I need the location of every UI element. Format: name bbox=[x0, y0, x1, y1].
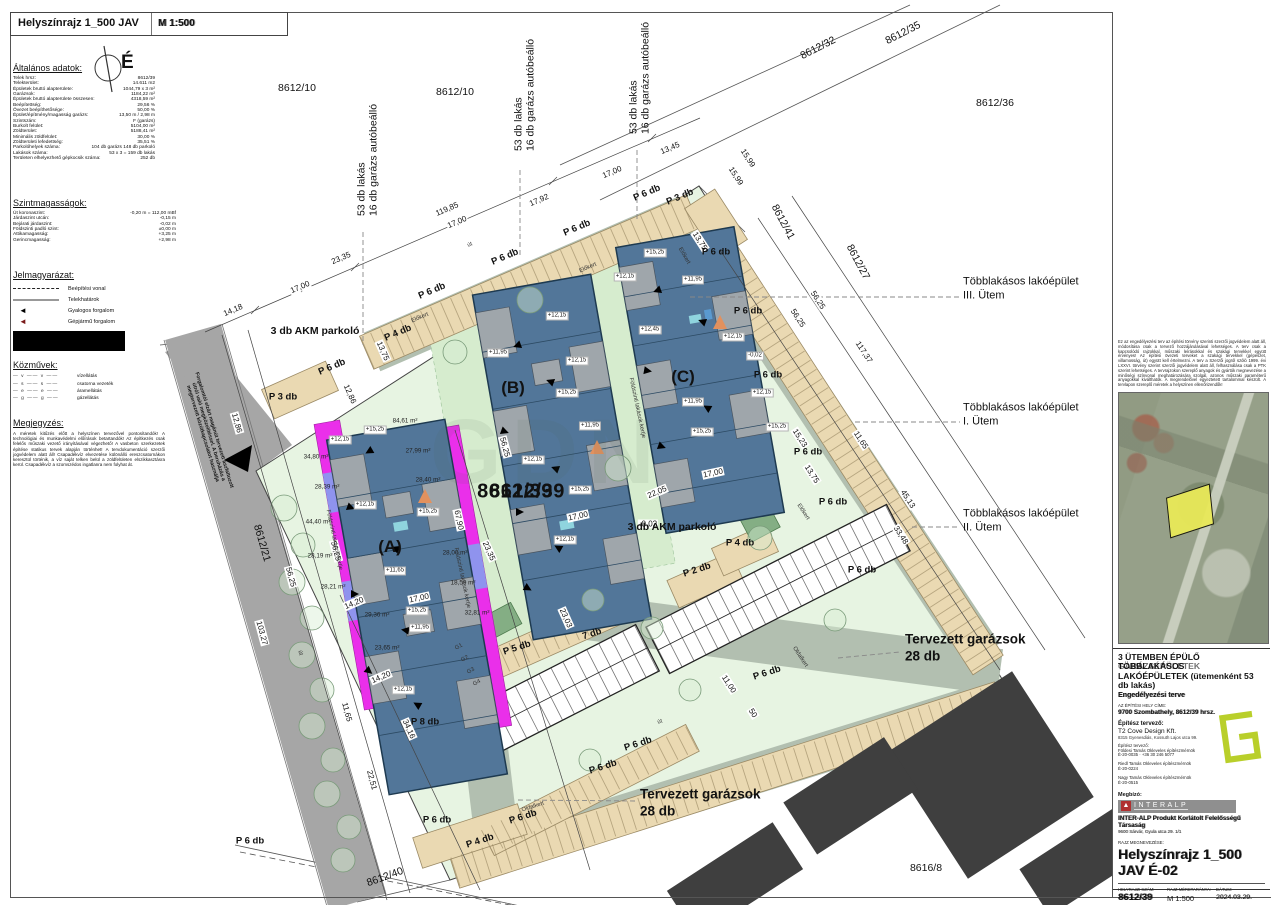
parcel-number-label: 8612/36 bbox=[976, 97, 1014, 109]
data-cell: +2,98 m bbox=[159, 238, 176, 243]
zone-label: G1 bbox=[454, 643, 464, 652]
elevation-chip: +12,15 bbox=[393, 687, 414, 694]
scale-value: M 1:500 bbox=[1167, 894, 1216, 903]
parking-count-label: P 3 db bbox=[665, 186, 695, 207]
elevation-chip: -0,02 bbox=[747, 353, 763, 360]
dimension-label: 67,90 bbox=[452, 508, 465, 531]
parking-count-label: P 6 db bbox=[423, 815, 451, 826]
client-address: 9600 Sárvár, Gyula utca 29. 1/1 bbox=[1118, 829, 1265, 834]
zone-label: Földszinti lakások kertje bbox=[628, 377, 647, 438]
drawing-scale: M 1:500 bbox=[158, 18, 195, 29]
legend-item: ◄Gépjármű forgalom bbox=[13, 316, 125, 327]
dimension-label: 13,45 bbox=[658, 140, 682, 157]
utilities-title: Közművek: bbox=[13, 360, 113, 370]
dimension-label: 17,00 bbox=[445, 214, 469, 231]
dimension-label: 56,25 bbox=[498, 435, 512, 459]
dimension-label: 12,86 bbox=[341, 382, 358, 406]
dimension-label: 14,20 bbox=[369, 669, 393, 686]
unit-count-label: 53 db lakás16 db garázs autóbeálló bbox=[629, 22, 652, 134]
parking-count-label: P 6 db bbox=[490, 246, 520, 267]
elevation-chip: +15,25 bbox=[767, 424, 788, 431]
scale-label: RAJZ MÉRETARÁNYA: bbox=[1167, 887, 1216, 892]
parking-count-label: P 6 db bbox=[623, 734, 653, 753]
data-row: Gerincmagasság:+2,98 m bbox=[13, 238, 176, 243]
unit-count-label: 53 db lakás16 db garázs autóbeálló bbox=[357, 104, 380, 216]
levels-title: Szintmagasságok: bbox=[13, 198, 176, 208]
header-divider bbox=[151, 13, 152, 35]
dimension-label: 14,20 bbox=[342, 595, 366, 612]
parcel-number-label: 8612/35 bbox=[883, 19, 922, 47]
dimension-label: 17,00 bbox=[288, 279, 312, 296]
elevation-chip: +12,15 bbox=[330, 437, 351, 444]
parking-count-label: 7 db bbox=[581, 626, 603, 642]
data-row: Területen elhelyezhető gépkocsik száma:2… bbox=[13, 156, 155, 161]
legend-item: Telekhatárok bbox=[13, 294, 125, 305]
zone-label: Oldalkert bbox=[791, 646, 809, 669]
akm-parking-label: 3 db AKM parkoló bbox=[628, 521, 717, 533]
parcel-number-label: 8612/32 bbox=[798, 34, 837, 62]
elevation-chip: +15,25 bbox=[570, 487, 591, 494]
dimension-label: 22,05 bbox=[645, 484, 669, 501]
parking-count-label: P 4 db bbox=[726, 538, 754, 549]
parking-count-label: P 6 db bbox=[819, 497, 847, 508]
elevation-chip: +12,15 bbox=[723, 334, 744, 341]
unit-count-label: 53 db lakás16 db garázs autóbeálló bbox=[514, 39, 537, 151]
dimension-label: 103,27 bbox=[254, 619, 270, 647]
dashed-icon bbox=[13, 288, 68, 289]
utility-line-icon: — v —— v —— bbox=[13, 374, 77, 379]
parcel-number-label: 8612/10 bbox=[278, 82, 316, 94]
apartment-area-label: 84,61 m² bbox=[393, 418, 418, 425]
parking-count-label: P 6 db bbox=[794, 447, 822, 458]
elevation-chip: +15,25 bbox=[645, 250, 666, 257]
dimension-label: 23,03 bbox=[557, 606, 574, 630]
parcel-number-label: 8612/41 bbox=[769, 202, 797, 241]
elevation-chip: +11,95 bbox=[580, 423, 600, 430]
parcel-number-label: 8616/8 bbox=[910, 862, 942, 874]
title-block-footer: HELYRAJZI SZÁM: 8612/39 RAJZ MÉRETARÁNYA… bbox=[1118, 883, 1265, 903]
utility-line-icon: — g —— g —— bbox=[13, 396, 77, 401]
main-parcel-number-ghost: 8612/39 bbox=[489, 481, 565, 504]
dimension-label: 17,00 bbox=[701, 466, 724, 479]
apartment-area-label: 27,99 m² bbox=[406, 448, 431, 455]
utility-item: — s —— s ——csatorna vezeték bbox=[13, 380, 113, 387]
planned-garages-label: Tervezett garázsok28 db bbox=[640, 787, 761, 820]
date-label: DÁTUM: bbox=[1216, 887, 1265, 892]
utility-label: gázellátás bbox=[77, 396, 99, 401]
dimension-label: 15,99 bbox=[738, 146, 758, 169]
apartment-area-label: 28,39 m² bbox=[315, 484, 340, 491]
data-cell: 252 db bbox=[140, 156, 155, 161]
data-cell: Gerincmagasság: bbox=[13, 238, 51, 243]
dimension-label: 11,65 bbox=[340, 700, 354, 723]
date-value: 2024.03.29. bbox=[1216, 894, 1265, 901]
apartment-area-label: 34,80 m² bbox=[304, 454, 329, 461]
elevation-chip: +15,25 bbox=[418, 509, 439, 516]
client-name: INTER-ALP Produkt Korlátolt Felelősségű … bbox=[1118, 815, 1265, 829]
dimension-label: 17,00 bbox=[407, 591, 430, 604]
parking-count-label: P 6 db bbox=[417, 280, 447, 301]
utilities-list: — v —— v ——vízellátás— s —— s ——csatorna… bbox=[13, 373, 113, 403]
elevation-chip: +12,15 bbox=[752, 390, 773, 397]
dimension-label: 11,65 bbox=[851, 429, 870, 452]
parcel-number-label: 8612/27 bbox=[844, 242, 872, 281]
dimension-label: 15,99 bbox=[726, 164, 746, 187]
utility-line-icon: — s —— s —— bbox=[13, 382, 77, 387]
utility-line-icon: — e —— e —— bbox=[13, 389, 77, 394]
parking-count-label: P 3 db bbox=[269, 392, 297, 403]
interalp-logo: ▲ INTERALP bbox=[1118, 800, 1236, 813]
parking-count-label: P 6 db bbox=[702, 247, 730, 258]
interalp-wordmark: INTERALP bbox=[1134, 802, 1188, 810]
parcel-number-label: 8612/21 bbox=[251, 523, 273, 563]
dimension-label: 23,35 bbox=[480, 539, 497, 563]
dimension-label: 22,51 bbox=[365, 768, 379, 792]
phase-label: Többlakásos lakóépületI. Ütem bbox=[963, 402, 1079, 429]
utility-label: vízellátás bbox=[77, 374, 97, 379]
planned-garages-label: Tervezett garázsok28 db bbox=[905, 632, 1026, 665]
legend-label: Beépítési vonal bbox=[68, 286, 106, 292]
zone-label: G4 bbox=[472, 679, 482, 688]
elevation-chip: +12,15 bbox=[555, 537, 576, 544]
utility-label: áramellátás bbox=[77, 389, 102, 394]
elevation-chip: +12,15 bbox=[523, 457, 544, 464]
dimension-label: 50 bbox=[746, 706, 759, 720]
dimension-label: 56,25 bbox=[808, 288, 828, 311]
parking-count-label: P 6 db bbox=[848, 565, 876, 576]
zone-label: út bbox=[296, 650, 303, 656]
drawing-header: Helyszínrajz 1_500 JAV M 1:500 bbox=[10, 12, 288, 36]
elevation-chip: +15,25 bbox=[365, 427, 386, 434]
parking-count-label: P 6 db bbox=[588, 757, 618, 776]
parking-count-label: P 2 db bbox=[682, 560, 712, 579]
dimension-label: 17,92 bbox=[527, 192, 551, 209]
parking-count-label: P 8 db bbox=[411, 717, 439, 728]
apartment-area-label: 32,81 m² bbox=[465, 610, 490, 617]
dimension-label: 17,00 bbox=[566, 509, 589, 522]
elevation-chip: +11,65 bbox=[385, 568, 405, 575]
apartment-area-label: 28,40 m² bbox=[416, 477, 441, 484]
legend-title: Jelmagyarázat: bbox=[13, 270, 125, 280]
plan-labels-layer: 8612/108612/108612/328612/358612/368612/… bbox=[0, 0, 1280, 905]
elevation-chip: +12,45 bbox=[640, 327, 661, 334]
parking-count-label: P 4 db bbox=[383, 322, 413, 343]
dimension-label: 14,18 bbox=[221, 302, 245, 319]
drawing-name-label: RAJZ MEGNEVEZÉSE: bbox=[1118, 840, 1265, 845]
title-block: Ez az engedélyezési terv az építési törv… bbox=[1112, 12, 1272, 897]
north-letter: É bbox=[121, 52, 134, 74]
elevation-chip: +11,95 bbox=[683, 399, 703, 406]
arrow-red-icon: ◄ bbox=[13, 318, 68, 326]
elevation-chip: +12,15 bbox=[355, 502, 376, 509]
drawing-title: Helyszínrajz 1_500 JAV bbox=[18, 17, 139, 29]
notes-title: Megjegyzés: bbox=[13, 418, 165, 428]
phase-label: Többlakásos lakóépületII. Ütem bbox=[963, 508, 1079, 535]
dimension-label: 119,85 bbox=[433, 200, 460, 218]
data-cell: Területen elhelyezhető gépkocsik száma: bbox=[13, 156, 100, 161]
building-letter-label: (C) bbox=[671, 367, 695, 387]
levels-table: Út koronaszint:-0,20 m = 112,00 mBfJárda… bbox=[13, 211, 176, 243]
elevation-chip: +11,95 bbox=[410, 625, 430, 632]
private-road-note: Forgalomtól elzárt magánút tervezett asz… bbox=[181, 372, 234, 493]
zone-label: G3 bbox=[466, 667, 476, 676]
dimension-label: 12,86 bbox=[230, 411, 245, 435]
elevation-chip: +12,15 bbox=[615, 274, 636, 281]
hrsz-value: 8612/39 bbox=[1118, 892, 1167, 903]
project-title-line2: LAKÓÉPÜLETEK (ütemenként 53 db lakás) bbox=[1118, 672, 1265, 691]
phase-label: Többlakásos lakóépületIII. Ütem bbox=[963, 276, 1079, 303]
zone-label: Előkert bbox=[677, 247, 691, 266]
parking-count-label: P 6 db bbox=[754, 370, 782, 381]
building-fill-swatch bbox=[13, 331, 125, 351]
utility-item: — g —— g ——gázellátás bbox=[13, 395, 113, 402]
solid-icon bbox=[13, 299, 68, 301]
project-title: 3 ÜTEMBEN ÉPÜLŐ TÖBBLAKÁSOS LAKÓÉPÜLETEK… bbox=[1118, 653, 1265, 691]
gdn-logo-icon bbox=[1214, 707, 1266, 770]
dimension-label: 17,00 bbox=[600, 164, 624, 181]
aerial-map bbox=[1118, 392, 1269, 644]
parking-count-label: P 5 db bbox=[502, 638, 532, 657]
dimension-label: 13,75 bbox=[802, 462, 822, 485]
notes-text: A méretek kitűzés előtt a helyszínen ter… bbox=[13, 431, 165, 467]
zone-label: Előkert bbox=[579, 262, 598, 275]
legal-text: Ez az engedélyezési terv az építési törv… bbox=[1118, 340, 1266, 388]
parcel-number-label: 8612/40 bbox=[365, 865, 405, 889]
parking-count-label: P 6 db bbox=[632, 182, 662, 203]
building-letter-label: (A) bbox=[378, 537, 402, 557]
parking-count-label: P 6 db bbox=[752, 663, 782, 682]
dimension-label: 33,48 bbox=[891, 523, 911, 546]
dimension-label: 117,37 bbox=[853, 339, 875, 366]
zone-label: út bbox=[467, 241, 474, 248]
zone-label: Előkert bbox=[411, 312, 430, 325]
akm-parking-label: 3 db AKM parkoló bbox=[271, 325, 360, 337]
dimension-label: 56,25 bbox=[788, 306, 808, 329]
parcel-number-label: 8612/10 bbox=[436, 86, 474, 98]
legend-label: Gépjármű forgalom bbox=[68, 319, 115, 325]
utility-item: — e —— e ——áramellátás bbox=[13, 388, 113, 395]
elevation-chip: +12,15 bbox=[547, 313, 568, 320]
arrow-black-icon: ◄ bbox=[13, 307, 68, 315]
dimension-label: 56,25 bbox=[284, 565, 298, 589]
legend-label: Telekhatárok bbox=[68, 297, 99, 303]
elevation-chip: +15,25 bbox=[692, 429, 713, 436]
elevation-chip: +11,95 bbox=[488, 350, 508, 357]
project-title-ghost: GARÁZSÉPÜLETEK bbox=[1118, 662, 1200, 671]
dimension-label: 11,00 bbox=[719, 673, 738, 696]
architect-3-reg: É-20-0515 bbox=[1118, 781, 1265, 786]
legend-item: ◄Gyalogos forgalom bbox=[13, 305, 125, 316]
interalp-triangle-icon: ▲ bbox=[1121, 801, 1131, 811]
elevation-chip: +15,25 bbox=[407, 608, 428, 615]
legend-label: Gyalogos forgalom bbox=[68, 308, 114, 314]
apartment-area-label: 28,19 m² bbox=[308, 553, 333, 560]
zone-label: G2 bbox=[460, 655, 470, 664]
dimension-label: 45,13 bbox=[898, 487, 918, 510]
general-data-table: Telek hrsz:8612/39Telekterület:14.611 m2… bbox=[13, 76, 155, 162]
parking-count-label: P 6 db bbox=[236, 836, 264, 847]
building-letter-label: (B) bbox=[501, 378, 525, 398]
legend-item: Beépítési vonal bbox=[13, 283, 125, 294]
elevation-chip: +12,15 bbox=[567, 358, 588, 365]
elevation-chip: +11,95 bbox=[683, 277, 703, 284]
utility-item: — v —— v ——vízellátás bbox=[13, 373, 113, 380]
zone-label: Előkert bbox=[796, 503, 811, 521]
drawing-name: Helyszínrajz 1_500 JAV É-02 bbox=[1118, 846, 1265, 878]
parking-count-label: P 6 db bbox=[317, 356, 347, 377]
dimension-label: 23,35 bbox=[329, 250, 353, 267]
highlighted-parcel bbox=[1166, 484, 1214, 539]
client-label: Megbízó: bbox=[1118, 792, 1265, 798]
apartment-area-label: 29,36 m² bbox=[365, 612, 390, 619]
project-subtitle: Engedélyezési terve bbox=[1118, 692, 1265, 699]
apartment-area-label: 28,21 m² bbox=[321, 584, 346, 591]
architect-3: Nagy Tamás Okleveles építészmérnök É-20-… bbox=[1118, 776, 1265, 786]
parking-count-label: P 6 db bbox=[562, 217, 592, 238]
zone-label: út bbox=[657, 718, 663, 725]
elevation-chip: +15,25 bbox=[557, 390, 578, 397]
title-block-box: 3 ÜTEMBEN ÉPÜLŐ TÖBBLAKÁSOS LAKÓÉPÜLETEK… bbox=[1113, 648, 1270, 890]
parking-count-label: P 6 db bbox=[734, 306, 762, 317]
parking-count-label: P 4 db bbox=[465, 831, 495, 850]
legend-list: Beépítési vonalTelekhatárok◄Gyalogos for… bbox=[13, 283, 125, 327]
apartment-area-label: 23,65 m² bbox=[375, 645, 400, 652]
utility-label: csatorna vezeték bbox=[77, 382, 113, 387]
